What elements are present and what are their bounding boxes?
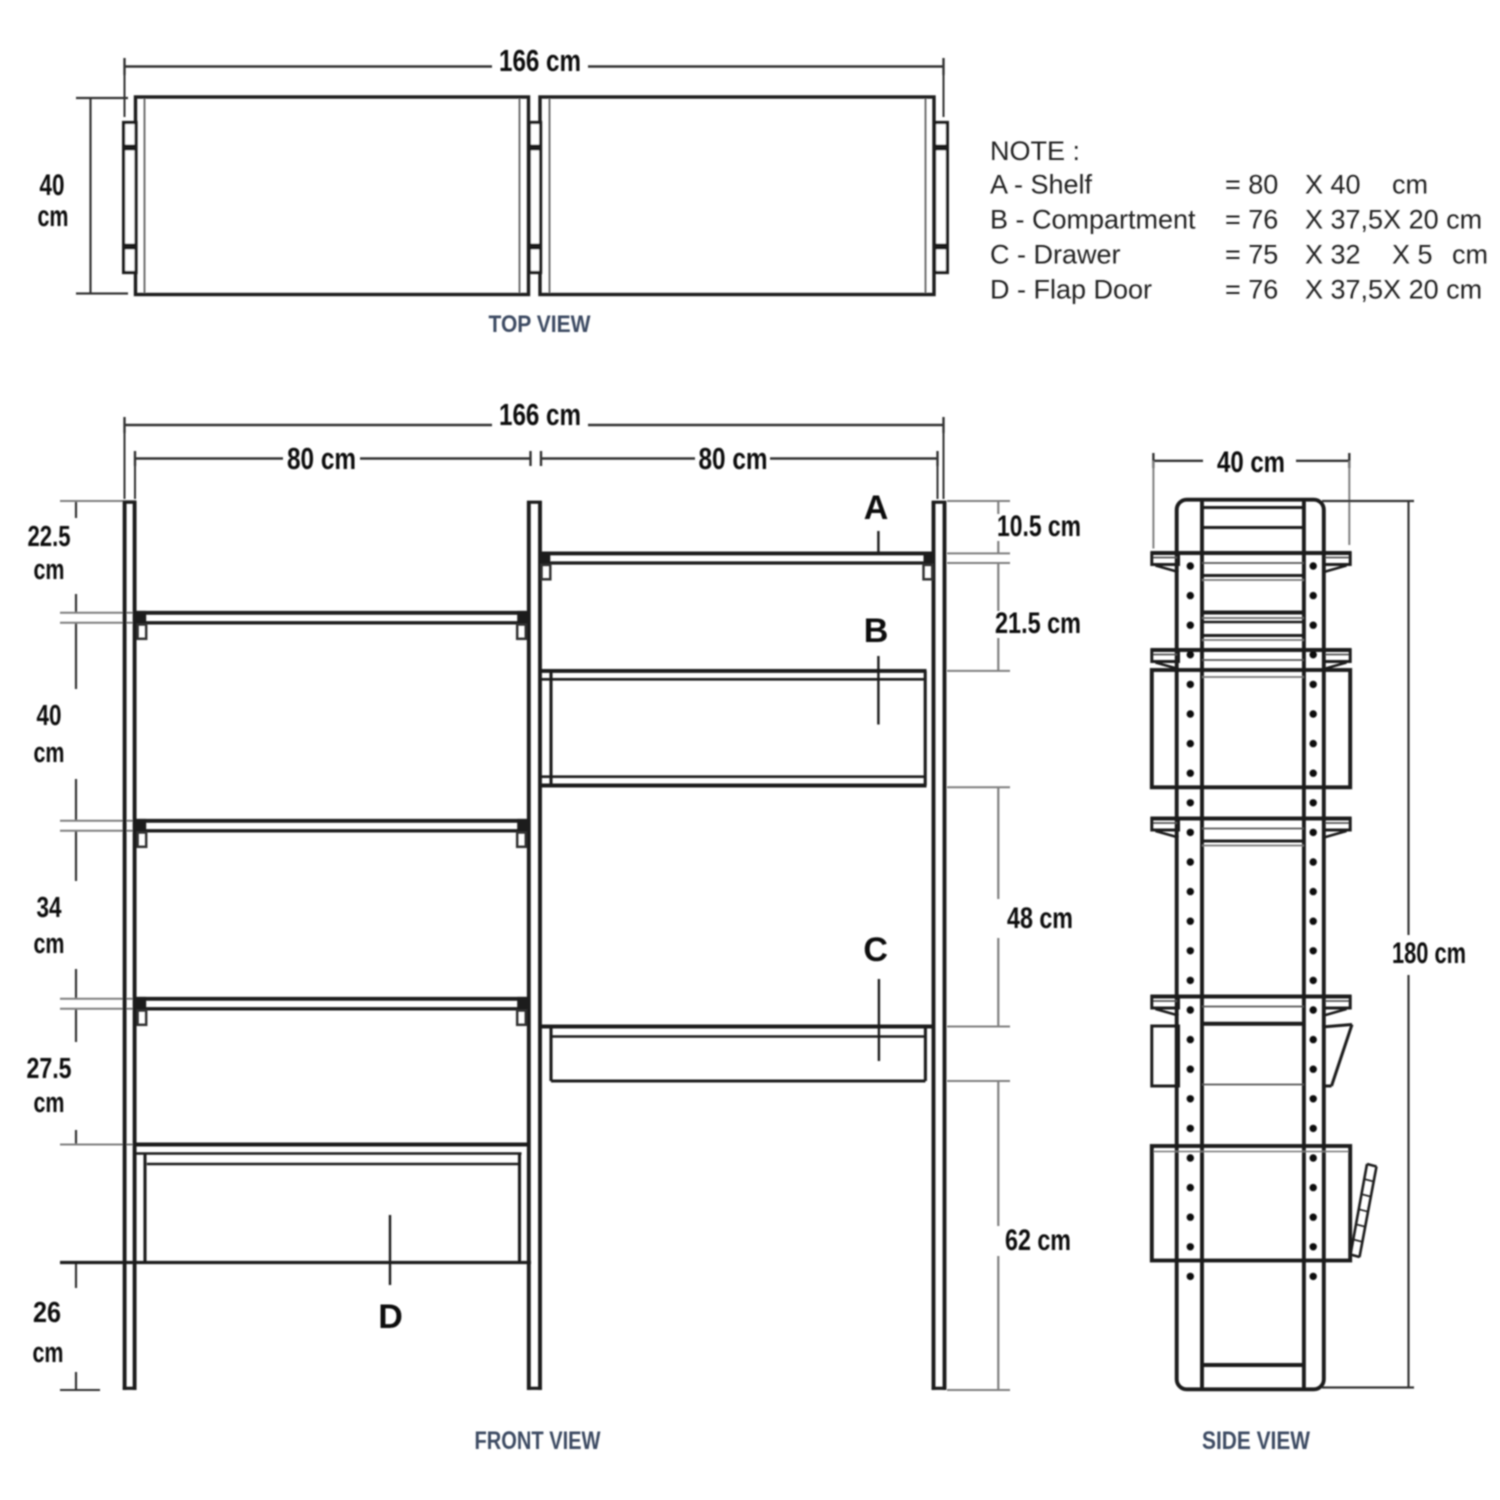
- svg-text:27.5: 27.5: [27, 1053, 72, 1085]
- svg-text:X 40: X 40: [1305, 170, 1361, 200]
- svg-text:cm: cm: [34, 1087, 65, 1119]
- svg-text:TOP VIEW: TOP VIEW: [489, 311, 591, 338]
- svg-text:21.5 cm: 21.5 cm: [995, 607, 1081, 640]
- svg-text:48 cm: 48 cm: [1007, 902, 1073, 935]
- svg-text:cm: cm: [1452, 240, 1488, 270]
- svg-text:cm: cm: [34, 554, 65, 586]
- svg-text:22.5: 22.5: [28, 521, 71, 553]
- svg-text:D: D: [378, 1298, 403, 1336]
- svg-text:= 75: = 75: [1225, 240, 1278, 270]
- svg-text:NOTE :: NOTE :: [990, 136, 1080, 166]
- svg-text:SIDE VIEW: SIDE VIEW: [1202, 1427, 1310, 1455]
- svg-text:cm: cm: [38, 200, 69, 233]
- svg-text:34: 34: [37, 892, 62, 924]
- svg-text:cm: cm: [34, 928, 65, 960]
- svg-text:C: C: [863, 931, 888, 969]
- svg-text:40: 40: [37, 700, 62, 732]
- svg-text:40: 40: [40, 169, 65, 202]
- svg-text:cm: cm: [33, 1337, 64, 1369]
- svg-text:cm: cm: [1392, 170, 1428, 200]
- svg-text:80 cm: 80 cm: [287, 441, 356, 476]
- svg-text:180 cm: 180 cm: [1392, 937, 1466, 970]
- svg-text:= 80: = 80: [1225, 170, 1278, 200]
- svg-text:D - Flap Door: D - Flap Door: [990, 275, 1152, 305]
- svg-text:80 cm: 80 cm: [699, 441, 768, 476]
- svg-text:166 cm: 166 cm: [499, 43, 581, 78]
- svg-text:62 cm: 62 cm: [1005, 1224, 1071, 1257]
- svg-text:= 76: = 76: [1225, 275, 1278, 305]
- svg-text:A - Shelf: A - Shelf: [990, 170, 1093, 200]
- svg-text:A: A: [864, 489, 889, 527]
- svg-text:= 76: = 76: [1225, 205, 1278, 235]
- svg-text:C - Drawer: C - Drawer: [990, 240, 1121, 270]
- svg-text:FRONT VIEW: FRONT VIEW: [475, 1427, 601, 1455]
- svg-text:X 32: X 32: [1305, 240, 1361, 270]
- svg-text:X 5: X 5: [1392, 240, 1433, 270]
- svg-text:166 cm: 166 cm: [499, 397, 581, 432]
- svg-text:40 cm: 40 cm: [1217, 446, 1285, 479]
- svg-text:B: B: [864, 612, 889, 650]
- svg-text:26: 26: [33, 1297, 61, 1329]
- svg-text:X 37,5X 20 cm: X 37,5X 20 cm: [1305, 275, 1482, 305]
- svg-text:cm: cm: [34, 737, 65, 769]
- svg-text:X 37,5X 20 cm: X 37,5X 20 cm: [1305, 205, 1482, 235]
- svg-text:B - Compartment: B - Compartment: [990, 205, 1196, 235]
- svg-text:10.5 cm: 10.5 cm: [997, 510, 1081, 543]
